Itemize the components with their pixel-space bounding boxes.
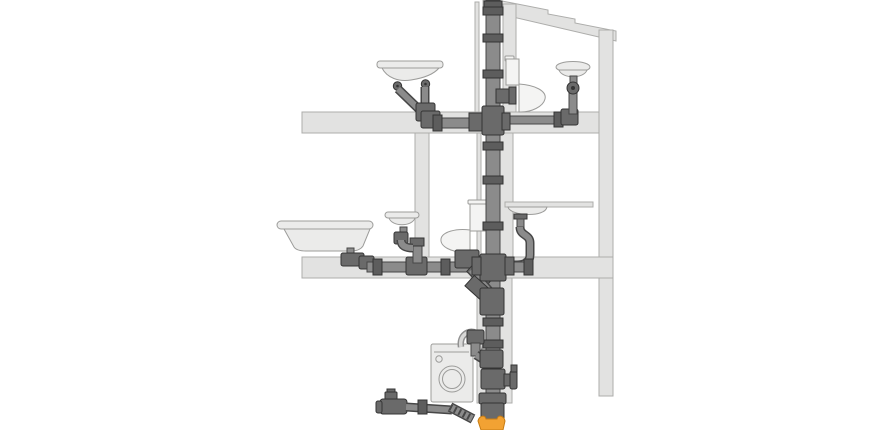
pipe-coupling xyxy=(441,259,450,275)
pipe-chase-mid xyxy=(500,133,513,257)
pipe-coupling xyxy=(484,1,502,7)
pipe-coupling xyxy=(433,115,442,131)
pipe-coupling xyxy=(483,34,503,42)
pipe-coupling xyxy=(483,176,503,184)
washbasin-trap-hole xyxy=(571,86,575,90)
pipe-coupling xyxy=(483,222,503,230)
pedestal-basin-bowl xyxy=(389,218,415,225)
pipe-coupling xyxy=(483,7,503,15)
pipe-coupling xyxy=(373,259,382,275)
chase-edge-mid xyxy=(477,133,481,257)
junction-lower-hub-left xyxy=(472,257,481,275)
cleanout-cap xyxy=(510,371,517,389)
drainage-diagram xyxy=(0,0,870,430)
main-soil-stack xyxy=(483,0,503,401)
toilet-upper-bowl xyxy=(519,84,545,112)
kitchen-sink-tailpiece-nut xyxy=(514,214,527,219)
drainage-diagram-canvas xyxy=(0,0,870,430)
kitchen-counter xyxy=(505,202,593,207)
floor-branch-run xyxy=(406,407,452,410)
pipe-coupling xyxy=(524,259,533,275)
floor-drain-body xyxy=(380,399,407,414)
cleanout-body xyxy=(481,369,505,389)
chase-edge-top xyxy=(475,2,479,112)
pipe-coupling xyxy=(483,340,503,348)
pipe-coupling xyxy=(483,142,503,150)
pipe-coupling xyxy=(483,70,503,78)
toilet-upper-cistern xyxy=(506,59,519,85)
branch-hub-left xyxy=(469,113,482,131)
toilet-lower-bowl xyxy=(441,229,470,252)
washbasin-drop-pipe xyxy=(569,92,577,114)
stack-wye-body xyxy=(480,288,504,315)
floor-drain-end-cap xyxy=(376,401,382,413)
toilet-lower-lid xyxy=(468,200,488,204)
cleanout-cap-handle xyxy=(511,365,517,372)
junction-hub-right xyxy=(502,113,510,130)
pedestal-basin-rim xyxy=(385,212,419,218)
stack-junction-upper xyxy=(482,106,504,135)
standpipe-wye-fitting xyxy=(480,350,503,368)
basin-drain-hole-left xyxy=(396,85,399,88)
double-basin-rim xyxy=(377,61,443,68)
kitchen-sink-bowl xyxy=(508,207,547,215)
standpipe-elbow xyxy=(467,330,484,344)
stack-junction-lower xyxy=(480,254,506,281)
kitchen-sink-tailpiece xyxy=(517,219,524,227)
bathtub-rim xyxy=(277,221,373,229)
stack-base-hub xyxy=(479,393,506,404)
pipe-coupling xyxy=(418,400,427,414)
double-basin-bowl xyxy=(382,68,439,81)
basin-drain-hole-right xyxy=(424,83,427,86)
pipe-coupling xyxy=(483,318,503,326)
outer-wall-right xyxy=(599,30,613,396)
toilet-upper-branch-hub xyxy=(509,87,516,104)
bathtub-body xyxy=(284,229,370,251)
washing-machine-knob xyxy=(436,356,442,362)
junction-lower-hub-right xyxy=(505,257,514,275)
